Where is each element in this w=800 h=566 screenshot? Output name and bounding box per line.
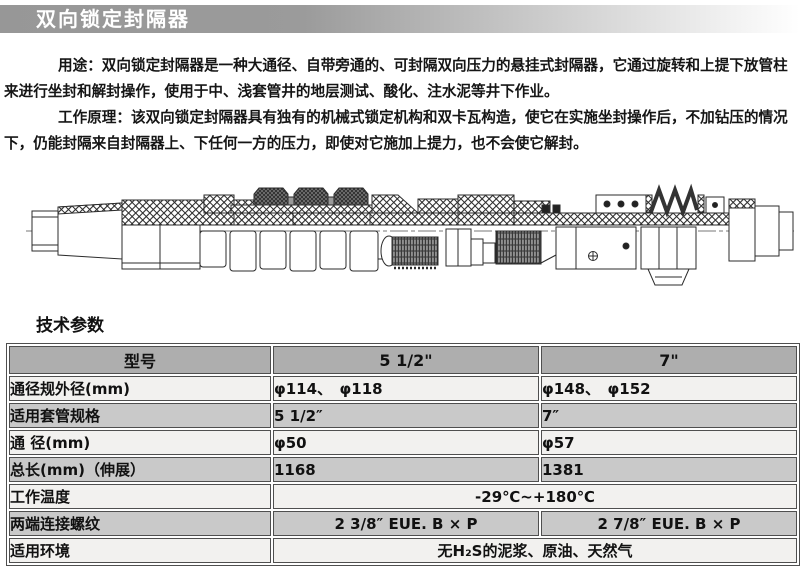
packer-figure — [26, 167, 800, 303]
row-label: 适用环境 — [9, 538, 271, 563]
row-label: 总长(mm)（伸展） — [9, 457, 271, 482]
row-value: 5 1/2″ — [273, 403, 539, 428]
table-header-row: 型号 5 1/2" 7" — [9, 346, 797, 374]
row-value: φ148、 φ152 — [541, 376, 797, 401]
spec-table: 型号 5 1/2" 7" 通径规外径(mm) φ114、 φ118 φ148、 … — [6, 343, 800, 566]
row-value: 2 7/8″ EUE. B × P — [541, 511, 797, 536]
header-model: 型号 — [9, 346, 271, 374]
header-size-7: 7" — [541, 346, 797, 374]
page-title-bar: 双向锁定封隔器 — [0, 5, 800, 33]
catalog-page: 双向锁定封隔器 用途：双向锁定封隔器是一种大通径、自带旁通的、可封隔双向压力的悬… — [0, 5, 800, 526]
row-value: 2 3/8″ EUE. B × P — [273, 511, 539, 536]
row-span-value: 无H₂S的泥浆、原油、天然气 — [273, 538, 797, 563]
row-label: 适用套管规格 — [9, 403, 271, 428]
row-span-value: -29℃~+180℃ — [273, 484, 797, 509]
row-value: 1381 — [541, 457, 797, 482]
header-size-55: 5 1/2" — [273, 346, 539, 374]
intro-text: 用途：双向锁定封隔器是一种大通径、自带旁通的、可封隔双向压力的悬挂式封隔器，它通… — [4, 53, 796, 157]
table-row: 通 径(mm) φ50 φ57 — [9, 430, 797, 455]
row-value: 1168 — [273, 457, 539, 482]
table-row: 适用环境 无H₂S的泥浆、原油、天然气 — [9, 538, 797, 563]
row-value: φ50 — [273, 430, 539, 455]
table-row: 两端连接螺纹 2 3/8″ EUE. B × P 2 7/8″ EUE. B ×… — [9, 511, 797, 536]
row-label: 两端连接螺纹 — [9, 511, 271, 536]
usage-line-1: 用途：双向锁定封隔器是一种大通径、自带旁通的、可封隔双向压力的悬挂式封隔器，它通… — [4, 53, 796, 79]
page-title: 双向锁定封隔器 — [0, 7, 190, 31]
row-value: 7″ — [541, 403, 797, 428]
row-label: 通 径(mm) — [9, 430, 271, 455]
packer-cross-section-diagram — [26, 167, 796, 299]
row-value: φ114、 φ118 — [273, 376, 539, 401]
row-label: 工作温度 — [9, 484, 271, 509]
principle-line-2: 下，仍能封隔来自封隔器上、下任何一方的压力，即使对它施加上提力，也不会使它解封。 — [4, 131, 796, 157]
usage-line-2: 来进行坐封和解封操作，使用于中、浅套管井的地层测试、酸化、注水泥等井下作业。 — [4, 79, 796, 105]
row-value: φ57 — [541, 430, 797, 455]
table-row: 总长(mm)（伸展） 1168 1381 — [9, 457, 797, 482]
principle-line-1: 工作原理：该双向锁定封隔器具有独有的机械式锁定机构和双卡瓦构造，使它在实施坐封操… — [4, 105, 796, 131]
table-row: 通径规外径(mm) φ114、 φ118 φ148、 φ152 — [9, 376, 797, 401]
section-heading: 技术参数 — [36, 311, 800, 336]
row-label: 通径规外径(mm) — [9, 376, 271, 401]
table-row: 工作温度 -29℃~+180℃ — [9, 484, 797, 509]
table-row: 适用套管规格 5 1/2″ 7″ — [9, 403, 797, 428]
